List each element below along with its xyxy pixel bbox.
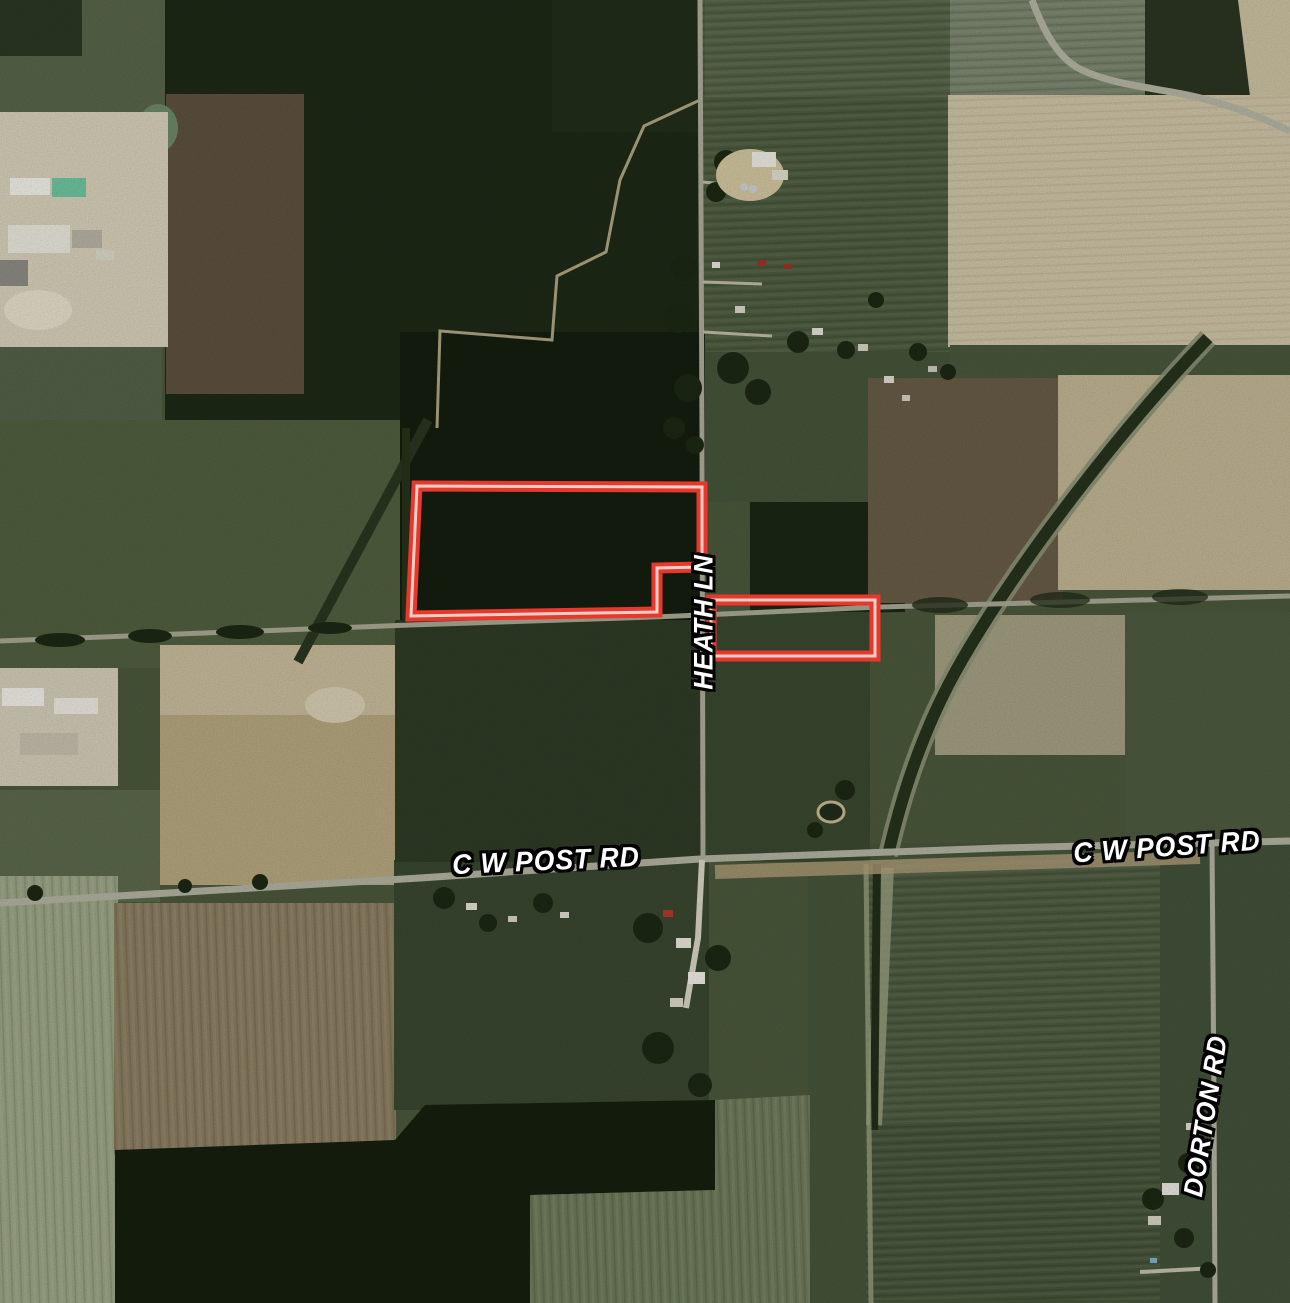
road-label-heath-ln: HEATH LN (689, 554, 720, 689)
grain-overlay (0, 0, 1290, 1303)
satellite-map: HEATH LN C W POST RD C W POST RD DORTON … (0, 0, 1290, 1303)
terrain-layer (0, 0, 1290, 1303)
